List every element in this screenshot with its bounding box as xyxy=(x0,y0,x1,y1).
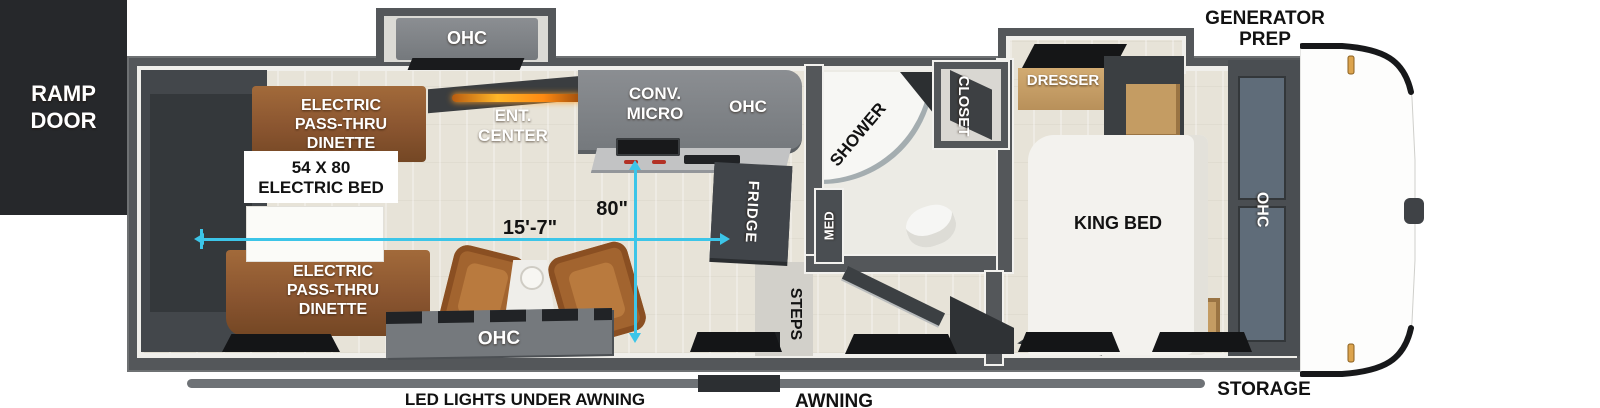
ohc-bottom-slats xyxy=(386,308,612,324)
tv-over-ent-center xyxy=(408,58,525,70)
fridge-label: FRIDGE xyxy=(740,180,761,244)
nightstand-top xyxy=(1126,84,1180,138)
ohc-front-label: OHC xyxy=(1252,170,1271,250)
dimension-width-arrow-bottom xyxy=(629,333,641,343)
window xyxy=(222,334,340,352)
window xyxy=(1152,332,1252,352)
electric-bed-label-box: 54 X 80 ELECTRIC BED xyxy=(244,151,398,203)
storage-label: STORAGE xyxy=(1210,379,1318,400)
dimension-line-width xyxy=(634,167,637,335)
king-bed: KING BED xyxy=(1028,135,1208,355)
ramp-door: RAMP DOOR xyxy=(0,0,127,215)
marker-light-bottom xyxy=(1348,344,1354,362)
led-lights-label: LED LIGHTS UNDER AWNING xyxy=(375,390,675,408)
awning-label: AWNING xyxy=(786,391,882,408)
ent-center-label: ENT. CENTER xyxy=(455,106,571,147)
ohc-bottom-cabinet: OHC xyxy=(386,308,612,358)
electric-bed-type: ELECTRIC BED xyxy=(244,178,398,197)
dimension-width-label: 80" xyxy=(580,198,628,220)
ohc-slide-label: OHC xyxy=(447,28,487,50)
dimension-width-arrow-top xyxy=(629,160,641,170)
dimension-length-arrow-left xyxy=(194,233,204,245)
floorplan-canvas: RAMP DOOR OHC ELECTRIC PASS-THRU DINETTE… xyxy=(0,0,1600,408)
dresser: DRESSER xyxy=(1018,68,1108,110)
cooktop-knob xyxy=(652,160,666,164)
dinette-top-label: ELECTRIC PASS-THRU DINETTE xyxy=(256,96,426,154)
dimension-length-label: 15'-7" xyxy=(470,217,590,239)
med-cabinet: MED xyxy=(816,190,842,262)
table-lamp xyxy=(520,266,544,290)
marker-light-top xyxy=(1348,56,1354,74)
dimension-length-arrow-right xyxy=(720,233,730,245)
generator-prep-label: GENERATOR PREP xyxy=(1180,8,1350,51)
ramp-door-label-line1: RAMP xyxy=(31,81,96,107)
med-label: MED xyxy=(821,212,837,241)
electric-bed-mattress xyxy=(246,206,384,262)
ramp-door-label-line2: DOOR xyxy=(31,108,97,134)
dinette-top-line2: PASS-THRU xyxy=(256,115,426,134)
steps-label: STEPS xyxy=(786,276,804,352)
ohc-bottom-label: OHC xyxy=(386,326,612,353)
dinette-top-line1: ELECTRIC xyxy=(256,96,426,115)
king-bed-label: KING BED xyxy=(1028,213,1208,233)
window xyxy=(845,334,957,354)
dinette-bottom-line1: ELECTRIC xyxy=(238,262,428,281)
ohc-slide-cabinet: OHC xyxy=(396,18,538,60)
hitch-knob xyxy=(1404,198,1424,224)
conv-micro-label: CONV. MICRO xyxy=(600,84,710,125)
window xyxy=(690,332,782,352)
ent-center-line1: ENT. xyxy=(455,106,571,126)
window xyxy=(1018,332,1120,352)
cooktop xyxy=(616,138,680,156)
front-cap xyxy=(1300,40,1424,380)
dimension-line-length xyxy=(202,238,724,241)
dinette-bottom-line2: PASS-THRU xyxy=(238,281,428,300)
fridge: FRIDGE xyxy=(710,162,793,262)
ent-center-line2: CENTER xyxy=(455,126,571,146)
closet-label: CLOSET xyxy=(954,66,972,146)
awning-center-bracket xyxy=(698,375,780,392)
conv-micro-line1: CONV. xyxy=(600,84,710,104)
fireplace-glow xyxy=(452,94,582,102)
generator-prep-line2: PREP xyxy=(1180,29,1350,50)
kitchen-ohc-label: OHC xyxy=(716,97,780,117)
awning-bar xyxy=(187,379,1205,388)
generator-prep-line1: GENERATOR xyxy=(1180,8,1350,29)
electric-bed-size: 54 X 80 xyxy=(244,158,398,177)
dresser-label: DRESSER xyxy=(1027,72,1100,90)
conv-micro-line2: MICRO xyxy=(600,104,710,124)
